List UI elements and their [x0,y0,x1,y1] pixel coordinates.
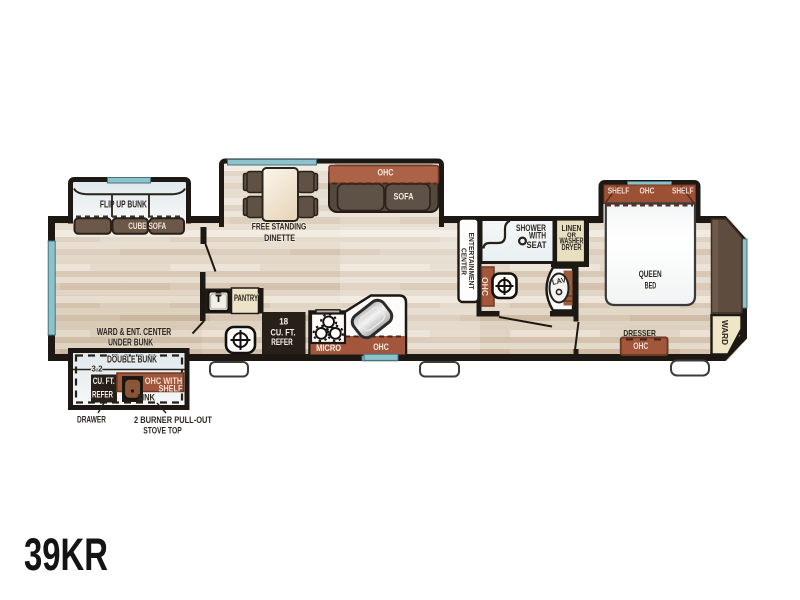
svg-text:SHELF: SHELF [159,384,183,395]
svg-text:OHC: OHC [373,342,389,353]
svg-text:FLIP UP BUNK: FLIP UP BUNK [100,200,148,211]
svg-text:3.2: 3.2 [92,364,103,374]
svg-text:SEAT: SEAT [527,240,547,251]
svg-text:DINETTE: DINETTE [264,233,295,244]
svg-text:REFER: REFER [271,337,293,348]
svg-text:OHC: OHC [378,168,394,178]
svg-text:QUEEN: QUEEN [639,269,662,279]
svg-text:18: 18 [279,317,288,328]
svg-text:DOUBLE BUNK: DOUBLE BUNK [107,355,158,366]
svg-text:MICRO: MICRO [316,343,341,354]
svg-text:DRAWER: DRAWER [77,414,106,424]
svg-text:2 BURNER PULL-OUT: 2 BURNER PULL-OUT [134,415,212,425]
svg-text:WARD & ENT. CENTER: WARD & ENT. CENTER [97,327,172,338]
svg-text:SINK: SINK [137,393,155,403]
svg-text:REFER: REFER [92,390,113,400]
svg-text:CENTER: CENTER [459,248,468,276]
svg-text:SOFA: SOFA [394,192,414,202]
svg-text:DRESSER: DRESSER [623,328,656,338]
svg-text:WARD: WARD [720,320,729,345]
svg-text:PANTRY: PANTRY [234,293,258,303]
svg-text:BED: BED [645,280,657,290]
svg-text:FREE STANDING: FREE STANDING [252,222,307,232]
svg-text:SHELF: SHELF [672,186,694,196]
svg-text:CUBE SOFA: CUBE SOFA [128,221,166,232]
svg-text:CU. FT.: CU. FT. [93,376,115,386]
svg-text:SHELF: SHELF [608,186,630,196]
svg-text:DRYER: DRYER [562,243,582,252]
svg-text:39KR: 39KR [24,529,108,580]
svg-text:STOVE TOP: STOVE TOP [143,426,182,436]
svg-text:OHC: OHC [633,341,648,352]
svg-text:OHC: OHC [640,186,655,196]
svg-text:OHC: OHC [480,277,489,296]
svg-text:UNDER BUNK: UNDER BUNK [108,338,154,349]
